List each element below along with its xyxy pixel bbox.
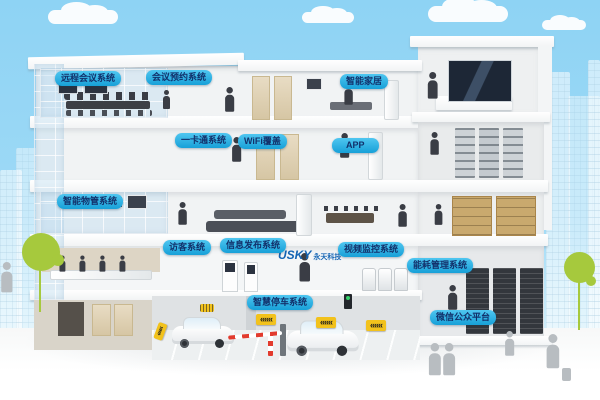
wall-picture (127, 195, 147, 209)
label-meeting-reservation-system: 会议预约系统 (146, 70, 212, 85)
penthouse-roof (410, 36, 554, 47)
parking-signal-light (344, 294, 352, 309)
person-silhouette (99, 256, 106, 273)
person-silhouette (426, 72, 437, 100)
roof-mid (238, 60, 422, 71)
meeting-table (326, 213, 374, 223)
smart-building-illustration: ««« ««« ««« ««« 远程会议系统 会议预约系统 智能家居 一卡通系统… (0, 0, 600, 400)
cloud (302, 12, 354, 23)
handshake-person (427, 343, 441, 377)
label-info-publishing-system: 信息发布系统 (220, 238, 286, 253)
info-kiosk (244, 262, 258, 292)
bookshelf (496, 196, 536, 236)
suitcase (562, 368, 571, 381)
floor5-door (274, 76, 292, 120)
vending-lockers (479, 128, 499, 178)
usky-logo: USKY永天科技 (278, 246, 341, 264)
turnstile-gate (394, 268, 408, 291)
parked-car (287, 331, 358, 352)
person-silhouette (224, 87, 234, 113)
label-property-management-system: 智能物管系统 (57, 194, 123, 209)
floor5-door (252, 76, 270, 120)
label-wifi-coverage: WiFi覆盖 (238, 134, 287, 149)
basement-corridor (58, 302, 84, 336)
tree-trunk (578, 280, 580, 330)
label-energy-management-system: 能耗管理系统 (407, 258, 473, 273)
vending-lockers (503, 128, 523, 178)
tree-small-leaf (586, 276, 596, 286)
person-silhouette (434, 204, 443, 226)
meeting-chairs (324, 206, 378, 211)
label-video-surveillance-system: 视频监控系统 (338, 242, 404, 257)
turnstile-gate (362, 268, 376, 291)
person-silhouette (447, 285, 457, 311)
label-visitor-system: 访客系统 (163, 240, 211, 255)
server-rack (493, 268, 516, 334)
vending-lockers (455, 128, 475, 178)
pedestrian-silhouette (504, 331, 514, 357)
lounge-sofa (214, 210, 286, 219)
label-wechat-public-platform: 微信公众平台 (430, 310, 496, 325)
pedestrian-silhouette (0, 262, 12, 294)
cloud (542, 20, 586, 30)
chevron-arrow-sign: ««« (316, 317, 336, 328)
barrier-post (280, 324, 286, 356)
person-silhouette (162, 90, 170, 110)
air-conditioner (296, 194, 312, 236)
wall-picture (306, 78, 322, 90)
label-app: APP (332, 138, 379, 153)
annex-floor4-slab (412, 112, 550, 122)
parked-car (172, 326, 234, 344)
turnstile-gate (378, 268, 392, 291)
usky-logo-chinese: 永天科技 (313, 254, 341, 261)
person-silhouette (397, 204, 407, 228)
lounge-sofa (206, 221, 310, 232)
traveler-silhouette (545, 334, 559, 370)
server-rack (520, 268, 543, 334)
label-smart-home: 智能家居 (340, 74, 388, 89)
small-parking-tag (200, 304, 214, 312)
penthouse-mural (448, 60, 512, 102)
person-silhouette (79, 256, 86, 273)
basement-door (92, 304, 111, 336)
tree-small-leaf (52, 254, 64, 266)
person-silhouette (177, 202, 187, 226)
cloud (428, 6, 508, 22)
floor3-slab (30, 180, 548, 192)
cloud (48, 10, 118, 24)
chevron-arrow-sign: ««« (256, 314, 276, 325)
person-silhouette (429, 132, 439, 156)
label-smart-parking-system: 智慧停车系统 (247, 295, 313, 310)
label-one-card-system: 一卡通系统 (175, 133, 232, 148)
conference-table (66, 101, 150, 109)
ticket-post (268, 334, 273, 356)
info-kiosk (222, 260, 238, 292)
person-silhouette (119, 256, 126, 273)
handshake-person (443, 343, 457, 377)
bookshelf (452, 196, 492, 236)
tree-trunk (39, 268, 41, 312)
chevron-arrow-sign: ««« (366, 320, 386, 331)
label-remote-conference-system: 远程会议系统 (55, 71, 121, 86)
basement-door (114, 304, 133, 336)
skyline-building (588, 60, 600, 330)
conference-chairs (66, 110, 152, 116)
